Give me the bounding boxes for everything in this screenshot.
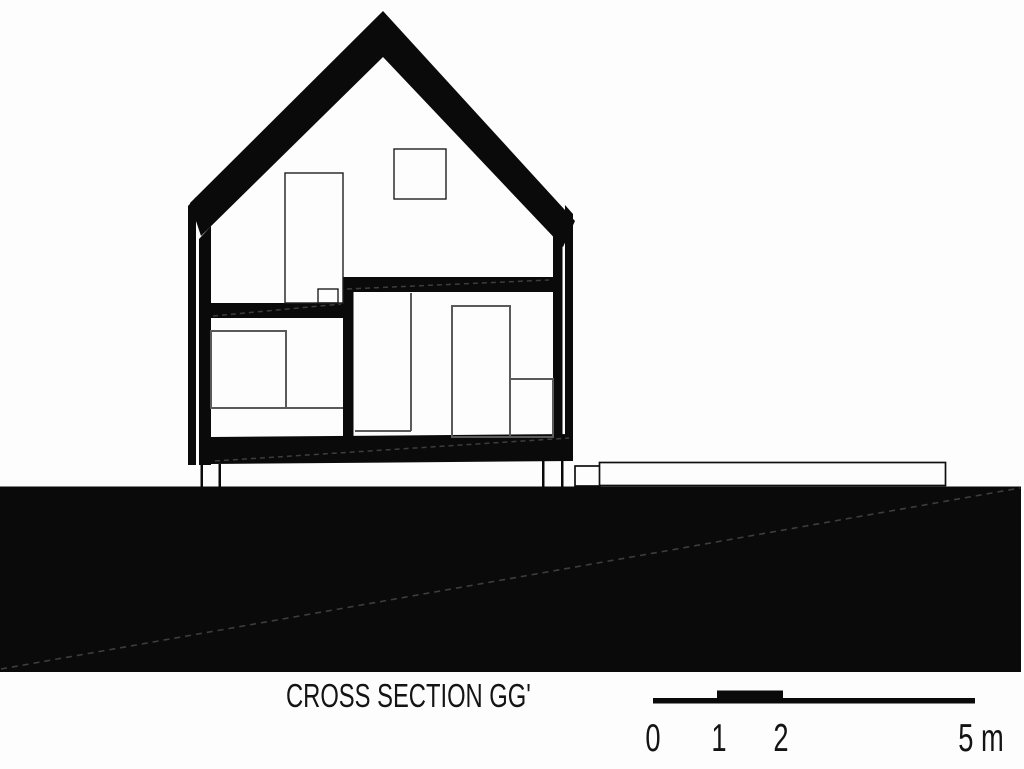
terrace-step [575,466,600,486]
ground-mass [0,487,1021,673]
section-canvas [0,0,1024,769]
lower-right-door-outline [452,306,510,437]
drawing-title: CROSS SECTION GG' [286,678,531,714]
roof [190,11,575,247]
roof-left-slope [190,11,383,236]
right-wall-core [553,236,563,458]
right-wall-outer-layer [565,205,573,458]
terrace-deck [600,463,946,486]
scale-bar [653,691,975,704]
attic-door-outline [285,173,343,303]
attic-step-outline [318,289,338,303]
upper-left-floor-slab [211,303,343,318]
scale-label-2: 2 [739,719,823,760]
cross-section-drawing: CROSS SECTION GG' 0 1 2 5 m [0,0,1024,769]
left-wall-outer-layer [188,197,196,465]
upper-right-floor-slab [343,277,553,292]
lower-right-cabinet-outline [510,379,553,437]
scale-bar-raised-segment [717,691,783,699]
lower-left-window-outline [211,331,286,408]
left-wall-core [199,226,211,465]
ground-floor-slab [211,434,573,464]
scale-label-5m: 5 m [939,719,1023,760]
attic-window-outline [394,149,446,199]
center-wall [343,277,354,462]
left-wall [188,197,211,465]
roof-right-slope [383,11,575,247]
scale-bar-base [653,698,975,704]
